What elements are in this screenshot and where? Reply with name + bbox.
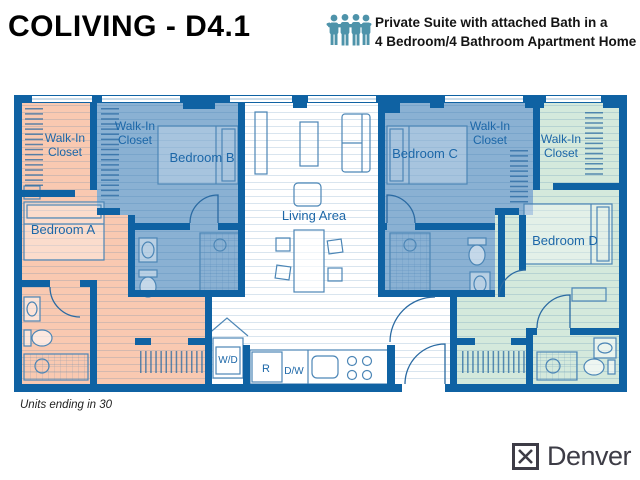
closet-b-label: Walk-InCloset <box>115 119 155 147</box>
bedroom-c-label: Bedroom C <box>392 146 458 161</box>
brand-x-icon <box>512 443 539 470</box>
toilet-c-icon <box>468 238 486 245</box>
living-area-label: Living Area <box>282 208 347 223</box>
shower-b-icon <box>200 233 240 293</box>
bedroom-d-label: Bedroom D <box>532 233 598 248</box>
kitchen-counter <box>250 350 390 384</box>
units-note: Units ending in 30 <box>20 399 112 411</box>
closet-a-label: Walk-InCloset <box>45 131 85 159</box>
toilet-d-icon <box>608 360 615 374</box>
bedroom-a-label: Bedroom A <box>31 222 96 237</box>
washer-dryer-label: W/D <box>218 355 237 366</box>
coliving-floorplan-page: { "header": { "title": "COLIVING - D4.1"… <box>0 0 640 480</box>
brand-logo: Denver <box>512 441 631 472</box>
shower-c-icon <box>390 233 430 293</box>
shower-a-icon <box>24 354 88 380</box>
shower-d-icon <box>537 352 577 380</box>
bedroom-b-label: Bedroom B <box>169 150 234 165</box>
toilet-b-icon <box>139 270 157 277</box>
dishwasher-label: D/W <box>284 366 304 377</box>
entry-threshold <box>402 384 445 392</box>
windows <box>32 96 601 102</box>
closet-c-label: Walk-InCloset <box>470 119 510 147</box>
toilet-a-icon <box>24 330 31 346</box>
brand-name: Denver <box>547 441 631 472</box>
closet-d-label: Walk-InCloset <box>541 132 581 160</box>
refrigerator-label: R <box>262 363 270 375</box>
